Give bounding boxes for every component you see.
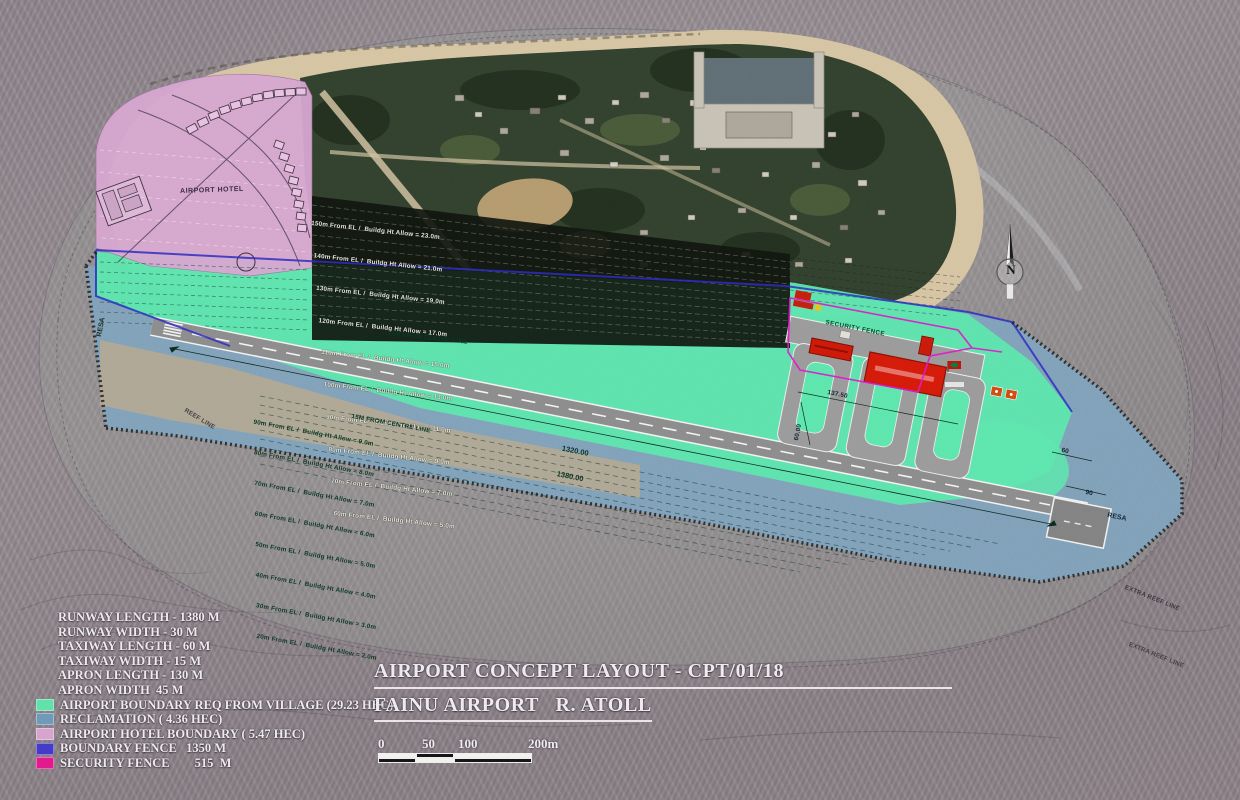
legend: RUNWAY LENGTH - 1380 M RUNWAY WIDTH - 30… bbox=[36, 610, 393, 771]
airport-name: FAINU AIRPORT R. ATOLL bbox=[374, 694, 652, 722]
height-line: 130m From EL / Buildg Ht Allow = 19.0m bbox=[315, 284, 479, 313]
scale-tick: 200m bbox=[528, 736, 558, 752]
scale-tick: 100 bbox=[458, 736, 478, 752]
legend-swatch-boundary-fence bbox=[36, 743, 54, 755]
legend-spec: TAXIWAY WIDTH - 15 M bbox=[36, 654, 393, 669]
height-line: 100m From EL / Buildg Ht Allow = 13.0m bbox=[323, 380, 469, 407]
legend-spec: RUNWAY LENGTH - 1380 M bbox=[36, 610, 393, 625]
drawing-title: AIRPORT CONCEPT LAYOUT - CPT/01/18 bbox=[374, 660, 952, 689]
legend-label: AIRPORT BOUNDARY REQ FROM VILLAGE (29.23… bbox=[60, 698, 393, 713]
height-line: 150m From EL / Buildg Ht Allow = 23.0m bbox=[311, 219, 487, 249]
legend-area: AIRPORT HOTEL BOUNDARY ( 5.47 HEC) bbox=[36, 727, 393, 742]
title-block: AIRPORT CONCEPT LAYOUT - CPT/01/18 FAINU… bbox=[374, 660, 952, 722]
end-dimension-60: 60 bbox=[1061, 448, 1069, 456]
legend-swatch-hotel-boundary bbox=[36, 728, 54, 740]
legend-label: AIRPORT HOTEL BOUNDARY ( 5.47 HEC) bbox=[60, 727, 305, 742]
hotel-zone bbox=[96, 74, 312, 276]
end-dimension-90: 90 bbox=[1085, 490, 1093, 498]
scale-tick: 50 bbox=[422, 736, 435, 752]
runway-dim-a: 1320.00 bbox=[561, 445, 589, 459]
legend-label: RECLAMATION ( 4.36 HEC) bbox=[60, 712, 222, 727]
runway-dim-b: 1380.00 bbox=[556, 470, 584, 484]
height-line: 140m From EL / Buildg Ht Allow = 21.0m bbox=[313, 251, 483, 280]
legend-spec: APRON LENGTH - 130 M bbox=[36, 668, 393, 683]
height-line: 60m From EL / Buildg Ht Allow = 6.0m bbox=[254, 509, 399, 545]
legend-label: BOUNDARY FENCE 1350 M bbox=[60, 741, 226, 756]
height-line: 50m From EL / Buildg Ht Allow = 5.0m bbox=[254, 540, 393, 575]
legend-area: RECLAMATION ( 4.36 HEC) bbox=[36, 712, 393, 727]
legend-spec: APRON WIDTH 45 M bbox=[36, 683, 393, 698]
scale-tick: 0 bbox=[378, 736, 385, 752]
scale-bar-graphic bbox=[378, 753, 532, 763]
scale-ticks: 0 50 100 200m bbox=[378, 736, 608, 751]
height-line: 80m From EL / Buildg Ht Allow = 8.0m bbox=[253, 448, 410, 487]
legend-area: AIRPORT BOUNDARY REQ FROM VILLAGE (29.23… bbox=[36, 698, 393, 713]
height-line: 110m From EL / Buildg Ht Allow = 15.0m bbox=[320, 348, 472, 375]
legend-area: SECURITY FENCE 515 M bbox=[36, 756, 393, 771]
legend-area: BOUNDARY FENCE 1350 M bbox=[36, 741, 393, 756]
legend-spec: RUNWAY WIDTH - 30 M bbox=[36, 625, 393, 640]
legend-spec: TAXIWAY LENGTH - 60 M bbox=[36, 639, 393, 654]
legend-label: SECURITY FENCE 515 M bbox=[60, 756, 231, 771]
harbor-jetty bbox=[694, 52, 824, 148]
scale-bar: 0 50 100 200m bbox=[378, 736, 608, 763]
legend-swatch-airport-boundary bbox=[36, 699, 54, 711]
height-line: 70m From EL / Buildg Ht Allow = 7.0m bbox=[253, 479, 404, 517]
map-canvas: 150m From EL / Buildg Ht Allow = 23.0m 1… bbox=[0, 0, 1240, 800]
north-label: N bbox=[1003, 262, 1019, 278]
legend-swatch-security-fence bbox=[36, 757, 54, 769]
height-line: 40m From EL / Buildg Ht Allow = 4.0m bbox=[255, 571, 389, 605]
legend-swatch-reclamation bbox=[36, 713, 54, 725]
